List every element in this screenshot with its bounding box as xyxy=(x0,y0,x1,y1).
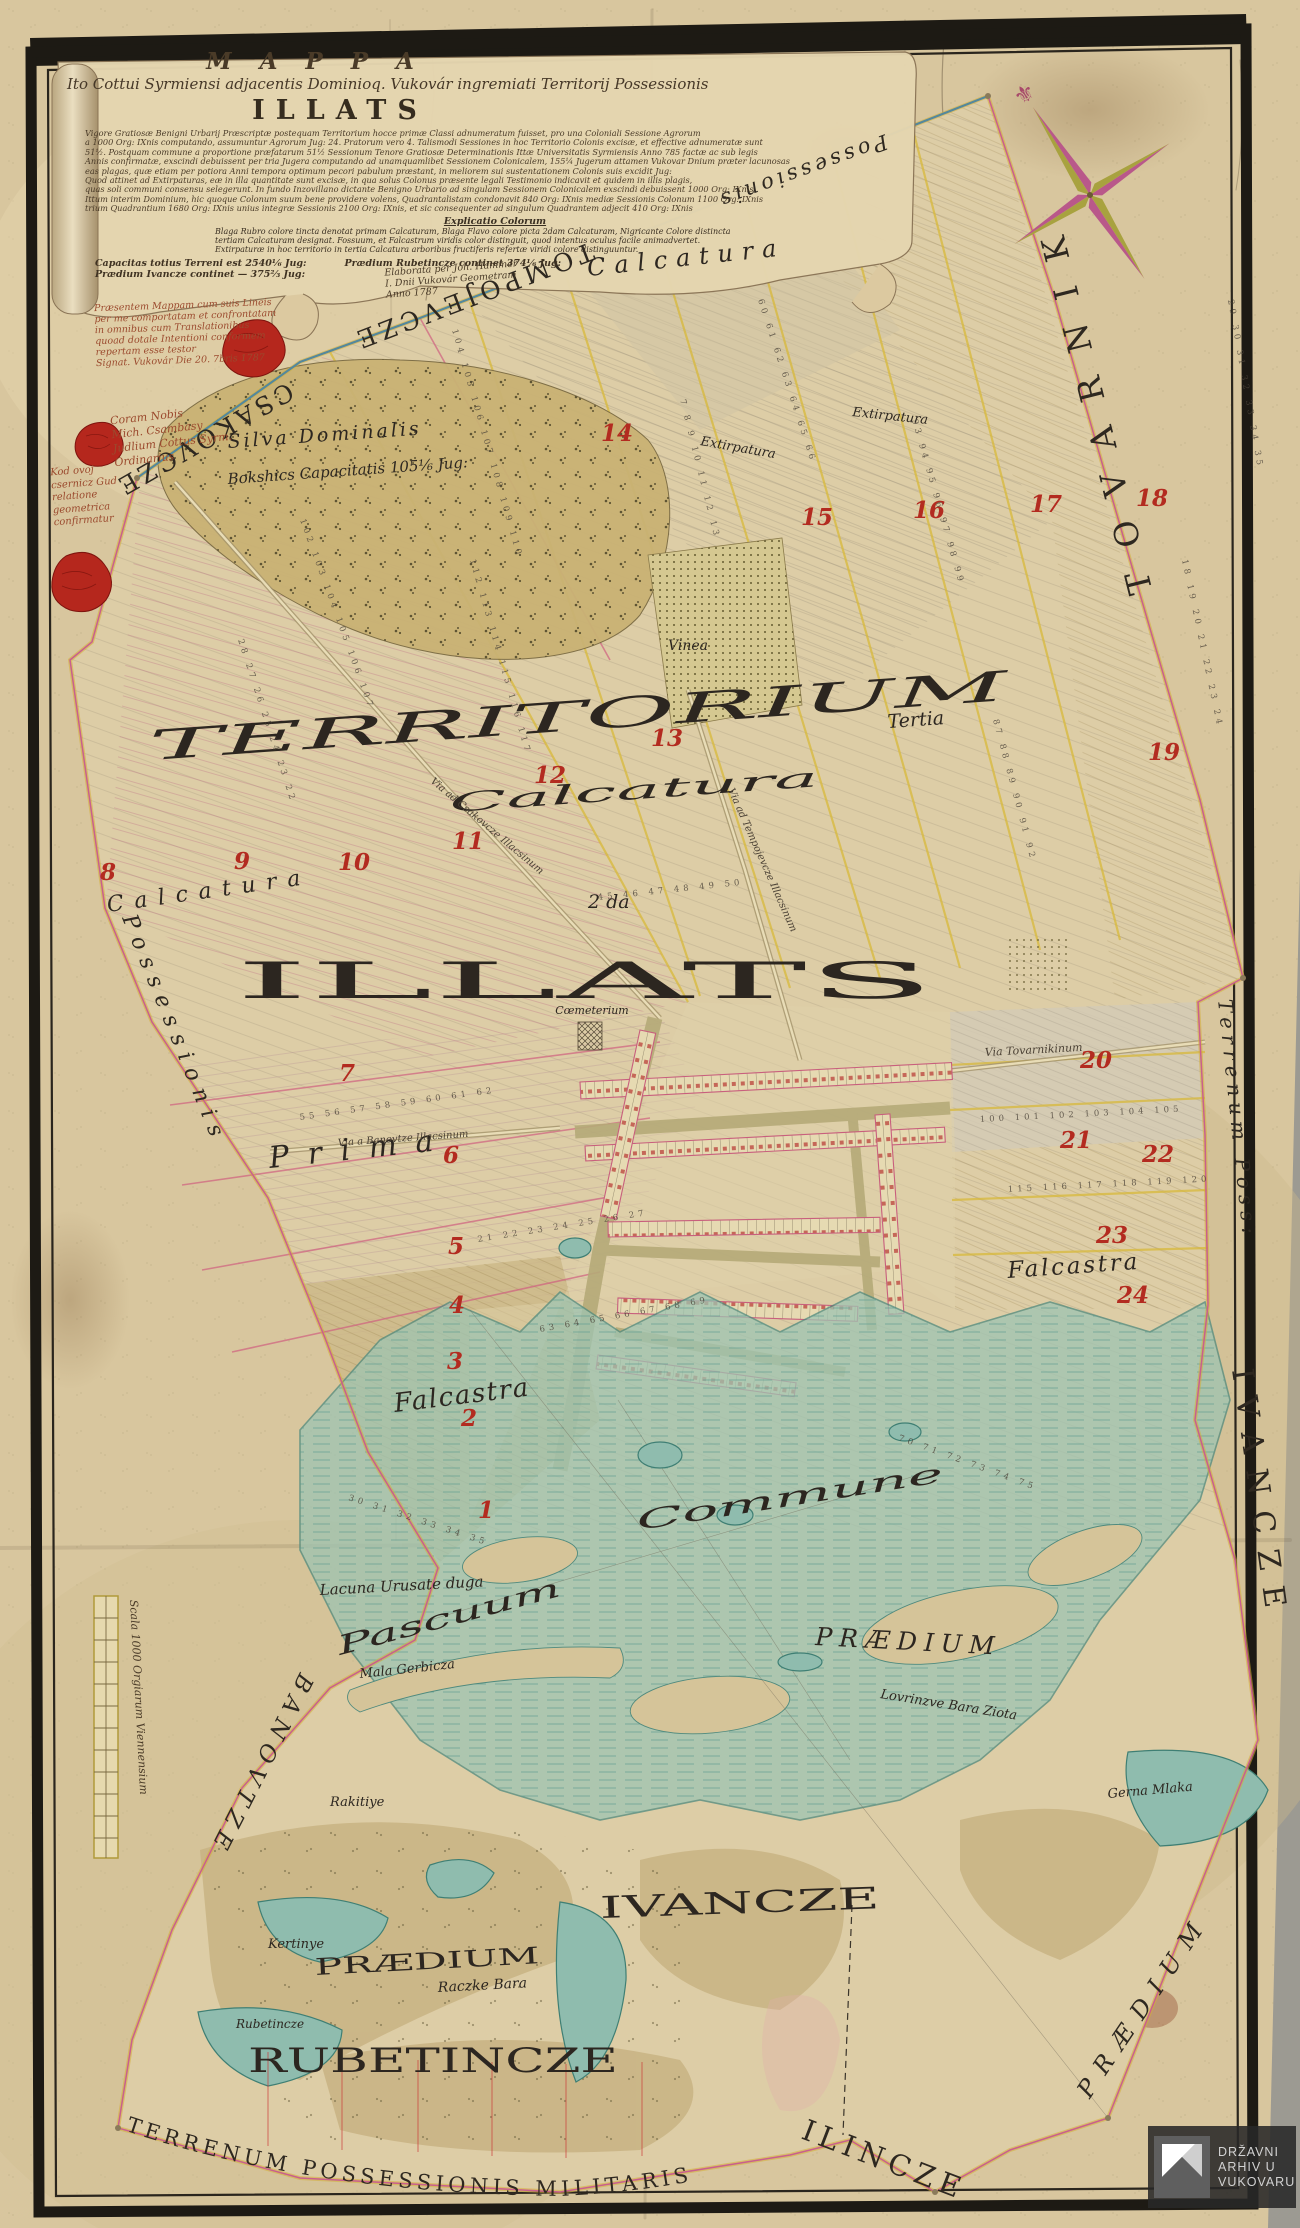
archive-watermark: DRŽAVNI ARHIV U VUKOVARU xyxy=(1148,2126,1296,2208)
watermark-line: DRŽAVNI xyxy=(1218,2145,1295,2160)
watermark-line: ARHIV U xyxy=(1218,2160,1295,2175)
red-parcel-number: 24 xyxy=(1116,1282,1149,1309)
scroll-roll-left xyxy=(52,64,98,314)
map-scan: ⚜ Scala 1000 Orgiarum Viennensium xyxy=(0,0,1300,2228)
red-parcel-number: 21 xyxy=(1059,1127,1092,1154)
label-tertia: Tertia xyxy=(887,707,945,733)
red-parcel-number: 11 xyxy=(452,828,484,855)
label-rakitiye: Rakitiye xyxy=(329,1795,385,1810)
red-parcel-number: 4 xyxy=(449,1292,465,1319)
historical-map-canvas: ⚜ Scala 1000 Orgiarum Viennensium xyxy=(0,0,1300,2228)
label-kertinye: Kertinye xyxy=(267,1937,324,1952)
red-parcel-number: 22 xyxy=(1141,1141,1174,1168)
label-rubetincze: RUBETINCZE xyxy=(248,2041,618,2081)
red-parcel-number: 1 xyxy=(478,1497,494,1524)
cemetery-plot xyxy=(578,1022,602,1050)
red-parcel-number: 2 xyxy=(460,1405,477,1432)
red-parcel-number: 17 xyxy=(1030,491,1062,518)
label-vinea: Vinea xyxy=(668,638,708,654)
label-coemeterium: Cœmeterium xyxy=(555,1004,628,1017)
archive-logo-icon xyxy=(1154,2136,1210,2198)
red-parcel-number: 12 xyxy=(534,762,566,789)
red-parcel-number: 18 xyxy=(1136,485,1168,512)
red-parcel-number: 13 xyxy=(651,725,683,752)
red-parcel-number: 8 xyxy=(99,859,116,886)
red-parcel-number: 5 xyxy=(448,1233,464,1260)
red-parcel-number: 3 xyxy=(447,1348,463,1375)
red-parcel-number: 14 xyxy=(601,420,633,447)
red-parcel-number: 20 xyxy=(1079,1047,1112,1074)
red-parcel-number: 23 xyxy=(1095,1222,1128,1249)
red-parcel-number: 15 xyxy=(801,504,833,531)
red-parcel-number: 6 xyxy=(443,1142,459,1169)
red-parcel-number: 9 xyxy=(234,848,250,875)
label-rubetincze-small: Rubetincze xyxy=(235,2017,304,2031)
red-parcel-number: 7 xyxy=(339,1060,355,1087)
label-illats-big: ILLATS xyxy=(235,952,935,1010)
red-parcel-number: 10 xyxy=(338,849,370,876)
watermark-line: VUKOVARU xyxy=(1218,2175,1295,2190)
red-parcel-number: 19 xyxy=(1148,739,1180,766)
